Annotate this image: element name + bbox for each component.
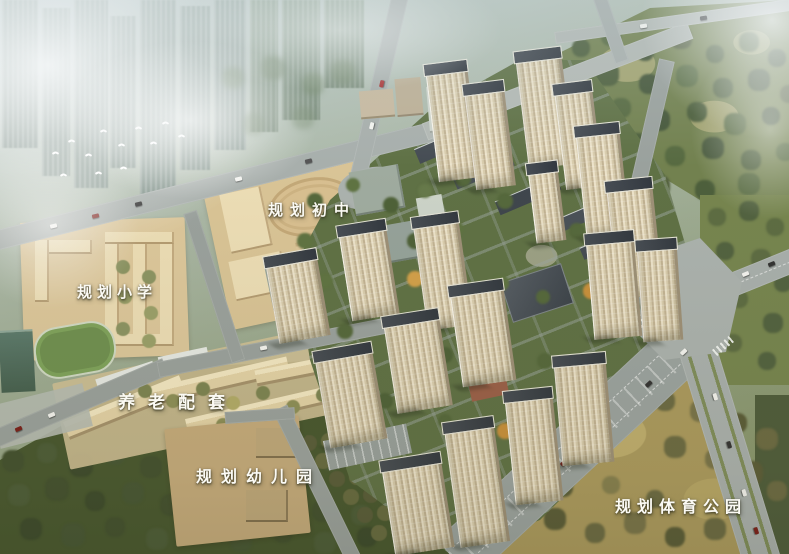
low-building — [394, 77, 423, 117]
bird — [150, 140, 158, 145]
label-elderly-care: 养老配套 — [118, 388, 238, 413]
bird — [135, 125, 143, 130]
bird — [178, 133, 186, 138]
low-building — [359, 89, 395, 120]
bird — [118, 142, 126, 147]
distant-building — [180, 6, 210, 170]
bird — [95, 170, 103, 175]
school-building — [105, 232, 174, 244]
bird — [162, 120, 170, 125]
bird — [52, 150, 60, 155]
bird — [68, 138, 76, 143]
residential-tower — [586, 236, 643, 340]
label-planned-sports-park: 规划体育公园 — [615, 493, 747, 517]
tree-cluster — [706, 200, 712, 206]
residential-tower — [554, 358, 615, 466]
tree-cluster — [210, 55, 216, 61]
glass-building — [0, 329, 36, 393]
label-planned-primary-school: 规划小学 — [77, 281, 157, 302]
tree-cluster — [292, 168, 298, 174]
distant-building — [2, 0, 38, 148]
kindergarten-building — [246, 490, 288, 522]
distant-building — [214, 0, 246, 150]
distant-building — [324, 0, 364, 88]
school-building — [160, 232, 174, 346]
school-building — [35, 240, 49, 302]
tree-cluster — [560, 15, 566, 21]
label-planned-middle-school: 规划初中 — [268, 199, 356, 220]
residential-tower — [637, 244, 684, 343]
label-planned-kindergarten: 规划幼儿园 — [196, 463, 321, 487]
distant-building — [250, 0, 278, 132]
bird — [120, 165, 128, 170]
aerial-rendering: 规划初中 规划小学 养老配套 规划幼儿园 规划体育公园 — [0, 0, 789, 554]
bird — [60, 172, 68, 177]
public-building — [349, 164, 406, 216]
distant-building — [282, 0, 320, 120]
bird — [85, 152, 93, 157]
distant-building — [140, 0, 176, 198]
distant-building — [74, 0, 108, 188]
bird — [100, 128, 108, 133]
tree-cluster — [112, 250, 118, 256]
